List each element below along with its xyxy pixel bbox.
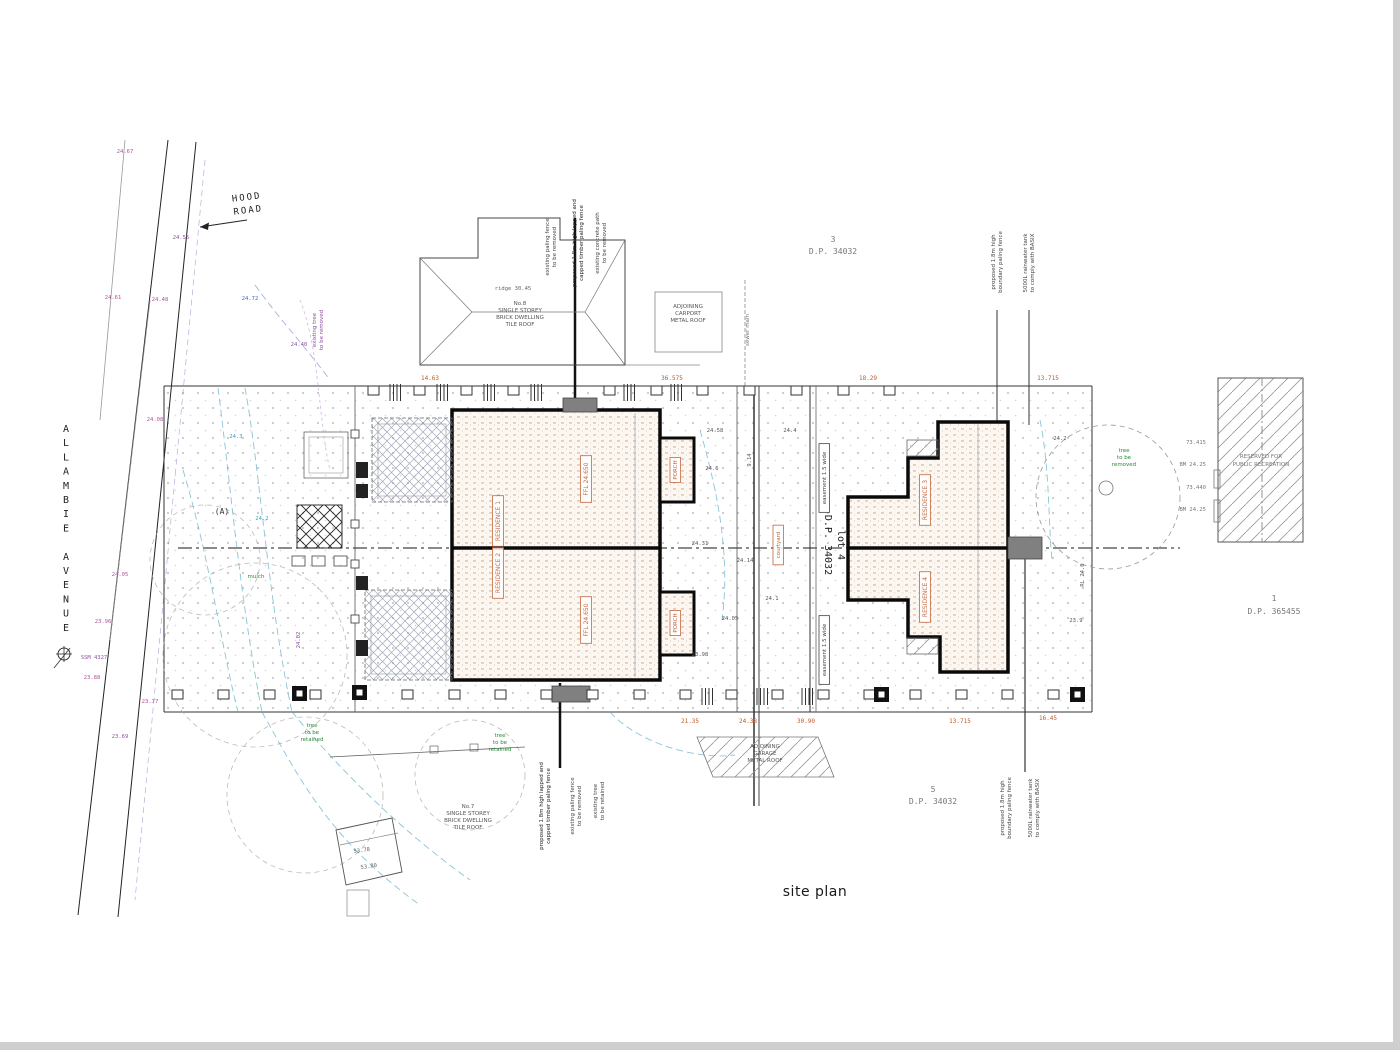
fence-post [461,386,472,395]
bench-mark: 73.440 [1186,485,1206,491]
spot-level: 23.98 [692,652,709,658]
fence-post [879,692,885,698]
porch-label-1: PORCH [670,457,681,482]
porch-pad-north [907,440,938,456]
street-name-allambie-avenue: ALLAMBIE AVENUE [63,424,69,634]
fence-post [172,690,183,699]
fence-post [864,690,875,699]
unit-label-residence-2: RESIDENCE 2 [495,553,502,593]
spot-level: 23.9 [1069,618,1082,624]
fence-post [541,690,552,699]
road-level: 24.72 [242,296,259,302]
annotation-fence-ne-1: proposed 1.8m highboundary paling fence [991,230,1004,292]
fence-post [1002,690,1013,699]
annotation-tree-sw: existing treeto be retained [593,782,606,821]
fence-post [351,615,359,623]
annotation-sewer: sewer main [745,314,751,346]
fence-post [351,430,359,438]
house-no8-label: No.8SINGLE STOREYBRICK DWELLINGTILE ROOF [496,301,544,328]
dim: 18.29 [859,375,877,382]
spot-level: 24.31 [692,541,709,547]
tree-label-2: treeto beretained [301,723,324,743]
fence-post [726,690,737,699]
dim: 24.38 [739,718,757,725]
side-structure [356,640,368,656]
fence-post [604,386,615,395]
ridge-level: ridge 30.45 [495,286,531,292]
annotation-fence-sw-2: existing paling fenceto be removed [570,777,583,835]
entry-block-south [552,686,590,702]
fence-post [414,386,425,395]
fence-post [587,690,598,699]
fence-post [818,690,829,699]
fence-post [1075,692,1081,698]
site-plan-drawing: ALLAMBIE AVENUEHOODROAD3D.P. 340325D.P. … [0,0,1400,1050]
fence-post [218,690,229,699]
garage-pad-1 [372,418,452,502]
spot-level: 53.80 [360,863,377,871]
existing-house-no8 [420,218,700,365]
unit-label-residence-2: RESIDENCE 2 [493,548,504,599]
annotation-tank-se: 5000L rainwater tankto comply with BASIX [1028,778,1041,838]
ffl-label-2: FFL 24.650 [581,597,592,644]
road-level: 23.77 [142,699,159,705]
road-level: 23.96 [95,619,112,625]
road-level: 24.08 [147,417,164,423]
annotation-fence-top-1: existing paling fenceto be removed [545,218,558,276]
dim: 30.90 [797,718,815,725]
side-structure [356,462,368,478]
dim: 13.715 [949,718,971,725]
spot-level: 24.05 [722,616,739,622]
site-plan-page: ALLAMBIE AVENUEHOODROAD3D.P. 340325D.P. … [0,0,1400,1050]
dim: 16.45 [1039,715,1057,722]
side-structure [356,484,368,498]
courtyard-label: courtyard [773,525,784,565]
spot-level: 24.6 [705,466,718,472]
spot-level: 24.4 [783,428,797,434]
garage-pad-2 [365,590,452,680]
fence-post [910,690,921,699]
driveway-crossover-hatch [297,505,342,548]
fence-post [956,690,967,699]
tree-label-3: treeto beretained [489,733,512,753]
fence-post [351,560,359,568]
fence-post [495,690,506,699]
carport-label: ADJOININGCARPORTMETAL ROOF [670,304,705,324]
tree-label-1: treeto beremoved [1112,448,1136,468]
unit-label-residence-3: RESIDENCE 3 [922,480,929,520]
dim: 21.35 [681,718,699,725]
fence-post [772,690,783,699]
spot-level: 24.2 [1053,436,1066,442]
dim: 14.63 [421,375,439,382]
porch-label-2: PORCH [673,613,679,632]
easement-label-1: easement 1.5 wide [819,444,830,513]
lot-3-label: 3D.P. 34032 [809,235,857,256]
road-name: HOODROAD [231,191,263,217]
spot-level: 53.78 [353,847,370,855]
bench-mark: BM 24.25 [1180,462,1207,468]
easement-label-2: easement 1.5 wide [819,616,830,685]
dim: 36.575 [661,375,683,382]
connector-block [1008,537,1042,559]
porch-label-1: PORCH [673,460,679,479]
fence-post [680,690,691,699]
annotation-fence-top-2: proposed 1.8m high lapped andcapped timb… [572,199,585,287]
scan-edge-bottom [0,1042,1400,1050]
fence-post [744,386,755,395]
road-level: 24.67 [117,149,134,155]
spot-level: 24.58 [707,428,724,434]
ffl-label-1: FFL 24.650 [583,462,590,495]
neighbour-garage-outline [697,737,834,777]
fence-post [838,386,849,395]
fence-post [351,520,359,528]
annotation-fence-se-1: proposed 1.8m highboundary paling fence [1000,776,1013,838]
dim: 9.14 [747,453,753,467]
fence-post [791,386,802,395]
spot-level: 24.14 [737,558,754,564]
road-level: 23.69 [112,734,129,740]
entry-block-north [563,398,597,412]
side-structure [356,576,368,590]
lot-5-label: 5D.P. 34032 [909,785,957,806]
contour-value: 24.3 [229,434,242,440]
dim: 13.715 [1037,375,1059,382]
landscape-note: mulch [248,574,265,580]
courtyard-label: courtyard [776,532,782,559]
fence-post [368,386,379,395]
annotation-tree-w: existing treeto be removed [312,310,325,350]
house-no7-outline [330,744,525,916]
point-a: (A) [215,507,229,516]
fence-post [697,386,708,395]
bench-mark: BM 24.25 [1180,507,1207,513]
page-title: site plan [735,884,895,900]
fence-post [264,690,275,699]
road-level: 24.48 [152,297,169,303]
annotation-tank-ne: 5000L rainwater tankto comply with BASIX [1023,233,1036,293]
porch-label-2: PORCH [670,610,681,635]
unit-label-residence-4: RESIDENCE 4 [922,577,929,617]
annotation-path-top: existing concrete pathto be removed [595,212,608,274]
road-level: 24.02 [296,632,302,649]
unit-label-residence-1: RESIDENCE 1 [495,501,502,541]
fence-post [449,690,460,699]
unit-label-residence-4: RESIDENCE 4 [920,572,931,623]
bench-mark: 73.415 [1186,440,1206,446]
spot-level: RL 24.0 [1080,563,1086,586]
road-level: 24.55 [173,235,190,241]
easement-label-1: easement 1.5 wide [822,451,828,504]
house-no7-label: No.7SINGLE STOREYBRICK DWELLINGTILE ROOF [444,804,492,831]
porch-pad-south [907,638,938,654]
fence-post [1048,690,1059,699]
ffl-label-1: FFL 24.650 [581,456,592,503]
survey-mark: SSM 4327 [81,655,108,661]
fence-post [508,386,519,395]
road-level: 24.05 [112,572,129,578]
fence-post [297,691,303,697]
road-arrow [200,223,209,231]
lot-1-label: 1D.P. 365455 [1248,594,1301,616]
drainage-reserve [1214,378,1303,542]
fence-post [310,690,321,699]
contour-value: 24.2 [255,516,268,522]
unit-label-residence-1: RESIDENCE 1 [493,496,504,547]
scan-edge-right [1393,0,1400,1050]
fence-post [402,690,413,699]
fence-post [884,386,895,395]
road-level: 23.88 [84,675,101,681]
easement-label-2: easement 1.5 wide [822,623,828,676]
survey-mark-symbol [54,646,72,668]
fence-post [651,386,662,395]
ffl-label-2: FFL 24.650 [583,603,590,636]
road-level: 24.61 [105,295,122,301]
road-level: 24.40 [291,342,308,348]
fence-post [357,690,363,696]
fence-post [634,690,645,699]
unit-label-residence-3: RESIDENCE 3 [920,475,931,526]
annotation-fence-sw-1: proposed 1.8m high lapped andcapped timb… [539,762,552,850]
spot-level: 24.1 [765,596,778,602]
